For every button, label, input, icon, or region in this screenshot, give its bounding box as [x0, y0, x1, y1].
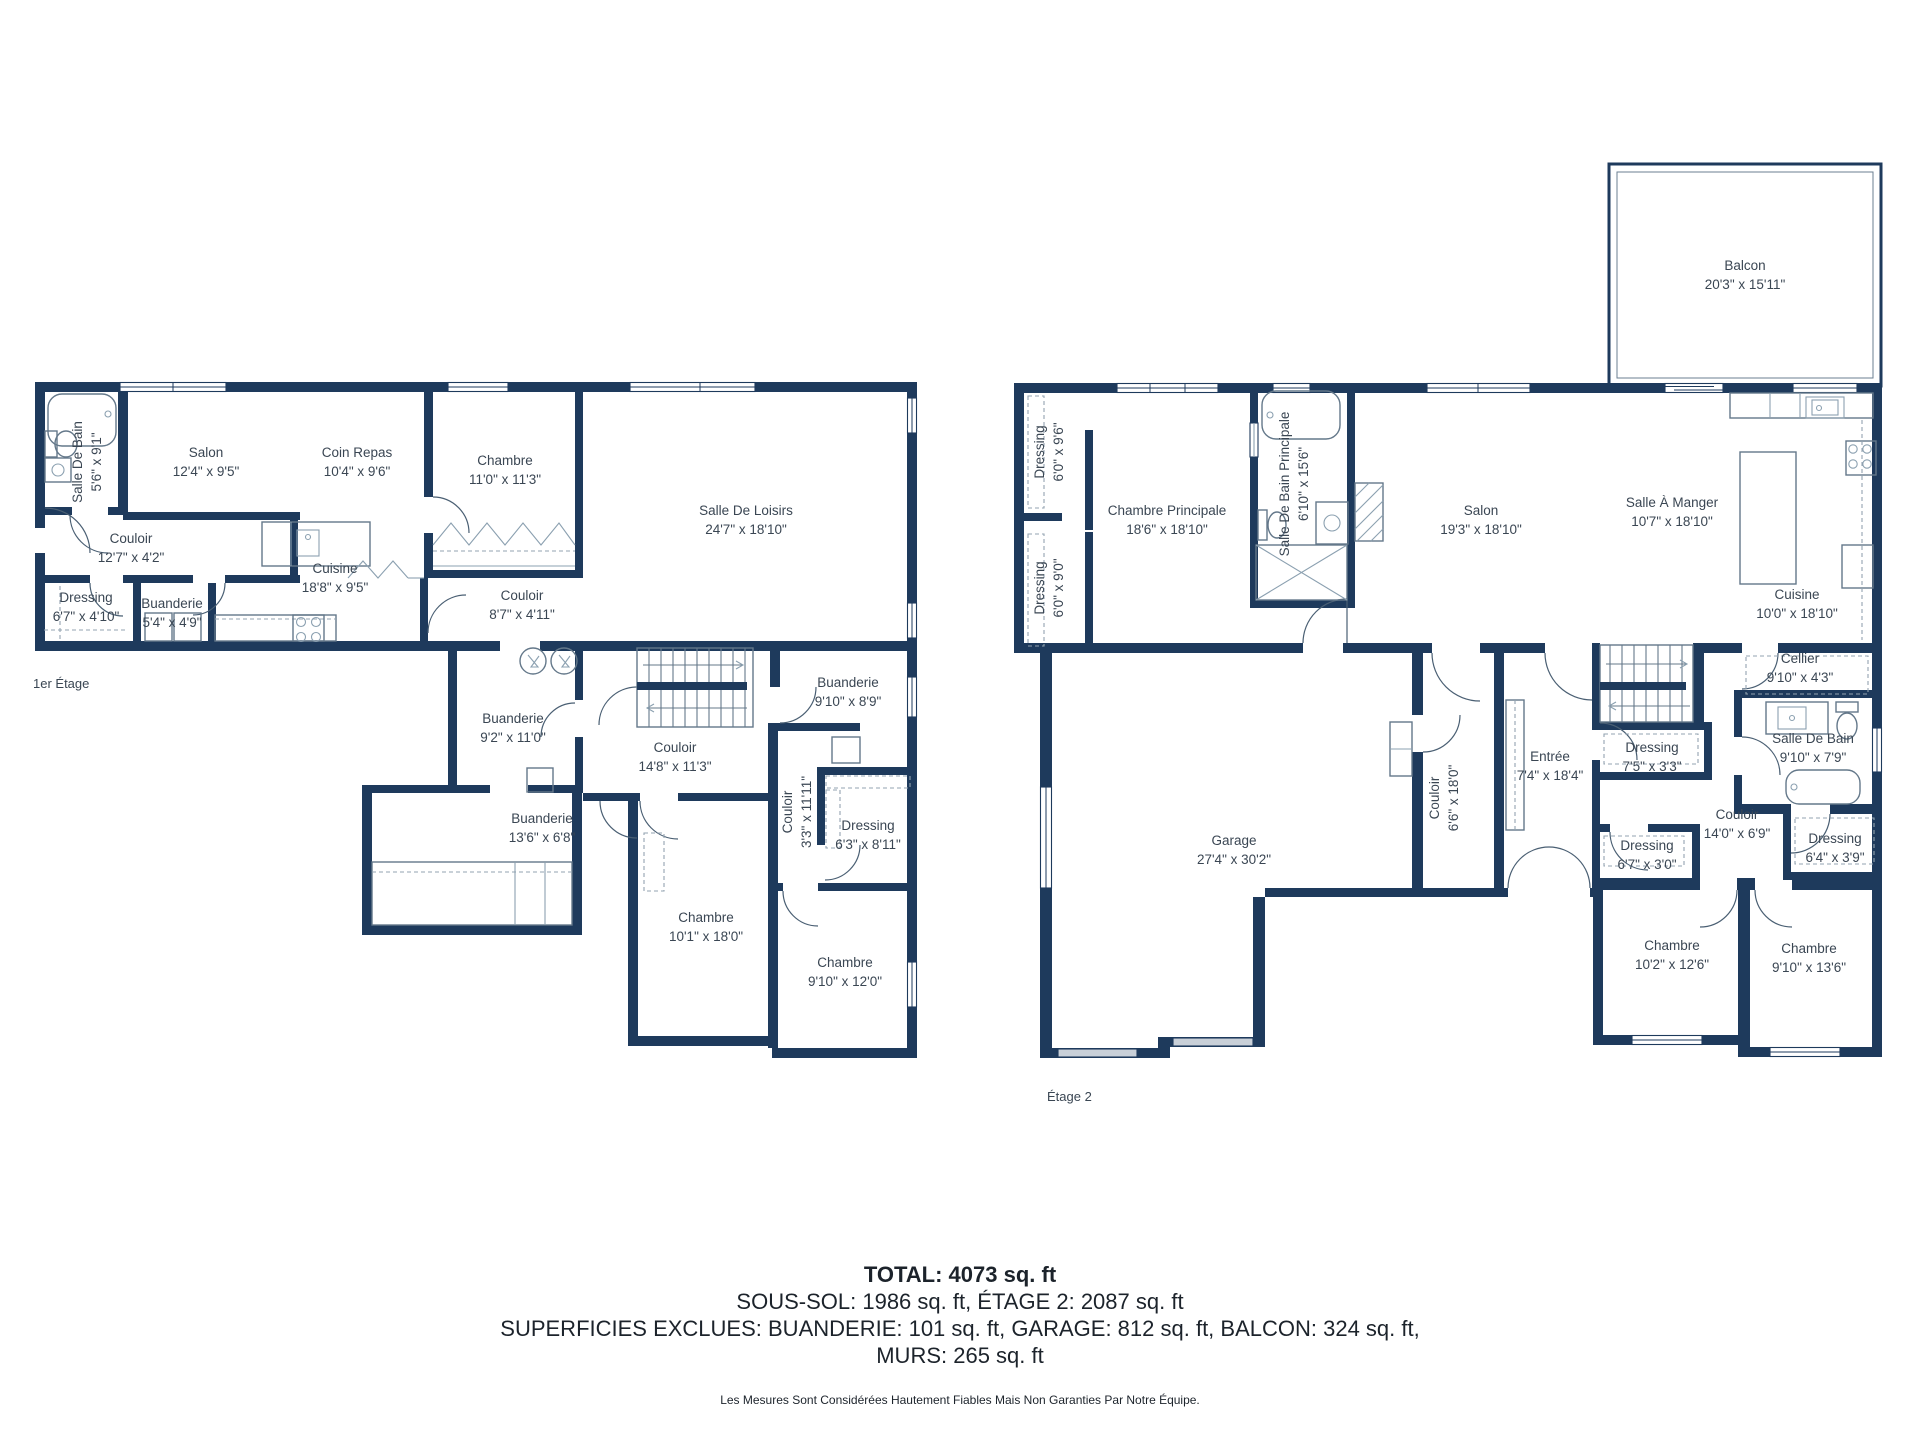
summary-floors: SOUS-SOL: 1986 sq. ft, ÉTAGE 2: 2087 sq.… [0, 1288, 1920, 1315]
room-label: Dressing6'0" x 9'0" [1032, 558, 1066, 617]
room-label: Salle De Bain9'10" x 7'9" [1772, 731, 1854, 765]
room-dims: 9'10" x 4'3" [1767, 670, 1834, 685]
room-name: Salle De Bain [70, 421, 85, 503]
room-name: Cuisine [312, 561, 357, 576]
room-label: Couloir6'6" x 18'0" [1427, 765, 1461, 832]
room-label: Salon19'3" x 18'10" [1440, 503, 1522, 537]
room-name: Salon [189, 445, 224, 460]
room-name: Coin Repas [322, 445, 393, 460]
room-dims: 10'2" x 12'6" [1635, 957, 1709, 972]
room-name: Cellier [1781, 651, 1820, 666]
room-dims: 7'5" x 3'3" [1622, 759, 1681, 774]
room-dims: 10'0" x 18'10" [1756, 606, 1838, 621]
room-name: Chambre [1644, 938, 1700, 953]
room-name: Couloir [654, 740, 697, 755]
room-name: Couloir [780, 790, 795, 833]
room-name: Chambre Principale [1108, 503, 1227, 518]
room-label: Salle De Bain Principale6'10" x 15'6" [1277, 412, 1311, 557]
room-label: Dressing6'7" x 3'0" [1617, 838, 1676, 872]
room-dims: 6'7" x 3'0" [1617, 857, 1676, 872]
room-label: Dressing6'3" x 8'11" [835, 818, 901, 852]
room-dims: 9'2" x 11'0" [480, 730, 546, 745]
kitchen-counter [1730, 393, 1873, 418]
room-label: Entrée7'4" x 18'4" [1517, 749, 1584, 783]
room-label: Salle De Bain5'6" x 9'1" [70, 421, 104, 503]
patio-door [1173, 1038, 1253, 1046]
room-label: Salle De Loisirs24'7" x 18'10" [699, 503, 793, 537]
room-name: Dressing [1808, 831, 1861, 846]
room-name: Buanderie [482, 711, 544, 726]
room-dims: 9'10" x 13'6" [1772, 960, 1846, 975]
room-name: Dressing [59, 590, 112, 605]
summary-disclaimer: Les Mesures Sont Considérées Hautement F… [0, 1393, 1920, 1407]
closet-rod [433, 523, 575, 545]
floor2-windows [1041, 384, 1882, 1058]
toilet-icon [1258, 510, 1267, 540]
room-label: Balcon20'3" x 15'11" [1705, 258, 1786, 292]
sink-icon [45, 458, 71, 482]
room-name: Salle De Bain [1772, 731, 1854, 746]
room-label: Dressing6'7" x 4'10" [53, 590, 120, 624]
kitchen-island [1740, 452, 1796, 584]
room-name: Dressing [841, 818, 894, 833]
room-name: Dressing [1620, 838, 1673, 853]
kitchen-counter [215, 615, 336, 641]
room-dims: 6'4" x 3'9" [1805, 850, 1864, 865]
room-name: Couloir [1716, 807, 1759, 822]
floor2-plan [1014, 164, 1882, 1058]
room-label: Buanderie13'6" x 6'8" [509, 811, 576, 845]
room-label: Cuisine10'0" x 18'10" [1756, 587, 1838, 621]
room-name: Buanderie [141, 596, 203, 611]
room-dims: 9'10" x 12'0" [808, 974, 882, 989]
room-dims: 6'0" x 9'0" [1051, 558, 1066, 617]
room-dims: 6'3" x 8'11" [835, 837, 901, 852]
room-label: Couloir3'3" x 11'11" [780, 776, 814, 848]
floor2-walls [1014, 383, 1882, 1058]
room-label: Couloir12'7" x 4'2" [98, 531, 165, 565]
room-dims: 6'10" x 15'6" [1296, 447, 1311, 521]
room-dims: 11'0" x 11'3" [469, 472, 541, 487]
room-label: Salon12'4" x 9'5" [173, 445, 240, 479]
room-dims: 19'3" x 18'10" [1440, 522, 1522, 537]
room-label: Chambre Principale18'6" x 18'10" [1108, 503, 1227, 537]
floor1-title: 1er Étage [33, 676, 89, 691]
room-dims: 10'7" x 18'10" [1631, 514, 1713, 529]
room-name: Chambre [678, 910, 734, 925]
room-name: Salon [1464, 503, 1499, 518]
room-dims: 9'10" x 8'9" [815, 694, 882, 709]
room-dims: 27'4" x 30'2" [1197, 852, 1271, 867]
sink-icon [1316, 502, 1348, 544]
room-label: Dressing6'0" x 9'6" [1032, 422, 1066, 481]
floor1-stairs [637, 648, 753, 727]
room-name: Buanderie [511, 811, 573, 826]
floor2-doors [1250, 423, 1830, 927]
room-dims: 10'4" x 9'6" [324, 464, 391, 479]
summary-walls: MURS: 265 sq. ft [0, 1342, 1920, 1369]
floorplan-canvas: 1er Étage Étage 2 Salle De Bain5'6" x 9'… [0, 0, 1920, 1440]
room-dims: 24'7" x 18'10" [705, 522, 787, 537]
room-name: Buanderie [817, 675, 879, 690]
room-name: Chambre [477, 453, 533, 468]
room-dims: 6'0" x 9'6" [1051, 422, 1066, 481]
room-dims: 14'0" x 6'9" [1704, 826, 1771, 841]
room-dims: 6'6" x 18'0" [1446, 765, 1461, 832]
room-name: Entrée [1530, 749, 1570, 764]
room-name: Garage [1211, 833, 1256, 848]
kitchen-island [262, 522, 370, 566]
room-label: Chambre10'1" x 18'0" [669, 910, 743, 944]
room-label: Dressing6'4" x 3'9" [1805, 831, 1864, 865]
room-name: Salle De Loisirs [699, 503, 793, 518]
room-name: Chambre [817, 955, 873, 970]
room-name: Cuisine [1774, 587, 1819, 602]
room-label: Buanderie9'2" x 11'0" [480, 711, 546, 745]
room-label: Coin Repas10'4" x 9'6" [322, 445, 393, 479]
room-name: Couloir [110, 531, 153, 546]
balcony-outline [1609, 164, 1881, 386]
summary-block: TOTAL: 4073 sq. ft SOUS-SOL: 1986 sq. ft… [0, 1261, 1920, 1407]
room-label: Garage27'4" x 30'2" [1197, 833, 1271, 867]
island-sink [297, 530, 319, 556]
room-name: Couloir [501, 588, 544, 603]
room-label: Dressing7'5" x 3'3" [1622, 740, 1681, 774]
room-name: Couloir [1427, 776, 1442, 819]
room-dims: 18'6" x 18'10" [1126, 522, 1208, 537]
room-label: Chambre9'10" x 13'6" [1772, 941, 1846, 975]
room-label: Couloir8'7" x 4'11" [489, 588, 555, 622]
room-dims: 20'3" x 15'11" [1705, 277, 1786, 292]
summary-excluded: SUPERFICIES EXCLUES: BUANDERIE: 101 sq. … [0, 1315, 1920, 1342]
floor2-stairs [1600, 645, 1693, 722]
toilet-icon [1836, 702, 1858, 712]
room-name: Balcon [1724, 258, 1765, 273]
floor2-title: Étage 2 [1047, 1089, 1092, 1104]
room-name: Dressing [1032, 425, 1047, 478]
bathtub-icon [1262, 391, 1340, 439]
room-label: Couloir14'8" x 11'3" [638, 740, 711, 774]
garage-door [1058, 1049, 1137, 1057]
room-dims: 10'1" x 18'0" [669, 929, 743, 944]
room-name: Salle À Manger [1626, 495, 1719, 510]
room-name: Dressing [1625, 740, 1678, 755]
room-name: Dressing [1032, 561, 1047, 614]
room-dims: 13'6" x 6'8" [509, 830, 576, 845]
room-label: Chambre10'2" x 12'6" [1635, 938, 1709, 972]
fridge-icon [1842, 545, 1873, 588]
room-dims: 8'7" x 4'11" [489, 607, 555, 622]
room-dims: 12'7" x 4'2" [98, 550, 165, 565]
room-dims: 5'4" x 4'9" [142, 615, 201, 630]
room-dims: 9'10" x 7'9" [1780, 750, 1847, 765]
room-dims: 12'4" x 9'5" [173, 464, 240, 479]
room-name: Chambre [1781, 941, 1837, 956]
room-dims: 18'8" x 9'5" [302, 580, 369, 595]
room-dims: 14'8" x 11'3" [638, 759, 711, 774]
room-dims: 7'4" x 18'4" [1517, 768, 1584, 783]
room-label: Salle À Manger10'7" x 18'10" [1626, 495, 1719, 529]
room-label: Buanderie9'10" x 8'9" [815, 675, 882, 709]
room-name: Salle De Bain Principale [1277, 412, 1292, 557]
room-dims: 5'6" x 9'1" [89, 432, 104, 491]
room-dims: 6'7" x 4'10" [53, 609, 120, 624]
room-label: Chambre9'10" x 12'0" [808, 955, 882, 989]
room-label: Chambre11'0" x 11'3" [469, 453, 541, 487]
floor2-room-labels: Balcon20'3" x 15'11"Dressing6'0" x 9'6"D… [1032, 258, 1865, 975]
summary-total: TOTAL: 4073 sq. ft [0, 1261, 1920, 1288]
room-dims: 3'3" x 11'11" [799, 776, 814, 848]
